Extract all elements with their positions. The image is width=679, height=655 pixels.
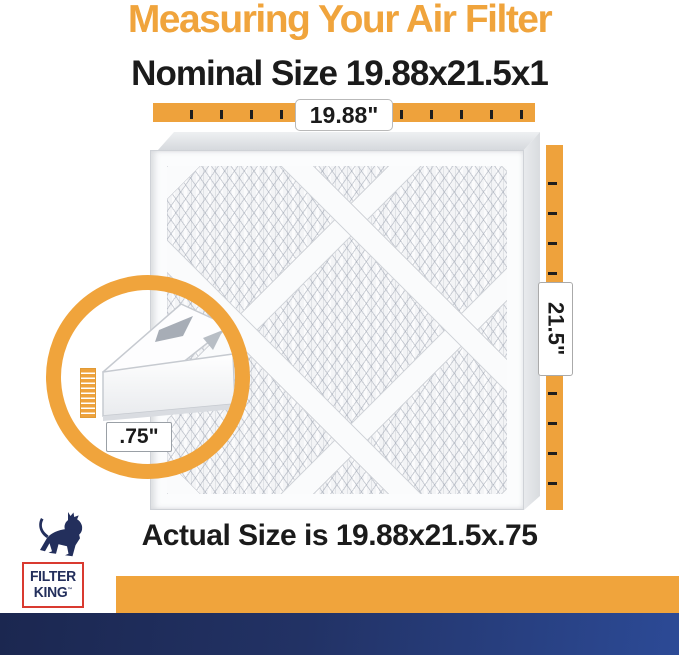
thickness-measurement-label: .75"	[106, 422, 172, 452]
page-title: Measuring Your Air Filter	[0, 0, 679, 42]
thickness-ruler	[80, 368, 96, 418]
trademark-symbol: ™	[68, 587, 73, 593]
product-infographic: Measuring Your Air Filter Nominal Size 1…	[0, 0, 679, 655]
actual-size-heading: Actual Size is 19.88x21.5x.75	[0, 519, 679, 553]
logo-line2: KING™	[34, 585, 72, 601]
nominal-size-heading: Nominal Size 19.88x21.5x1	[0, 54, 679, 94]
logo-line1: FILTER	[30, 569, 76, 585]
filter-king-wordmark: FILTER KING™	[22, 562, 84, 608]
height-measurement-text: 21.5"	[543, 302, 569, 355]
lion-crown-icon	[28, 505, 90, 563]
footer-blue-bar	[0, 613, 679, 655]
height-measurement-label: 21.5"	[538, 282, 573, 376]
footer-orange-bar	[116, 576, 679, 613]
filter-top-face	[150, 132, 540, 150]
width-measurement-label: 19.88"	[295, 99, 393, 131]
filter-king-logo: FILTER KING™	[20, 505, 100, 615]
logo-king-text: KING	[34, 585, 68, 601]
